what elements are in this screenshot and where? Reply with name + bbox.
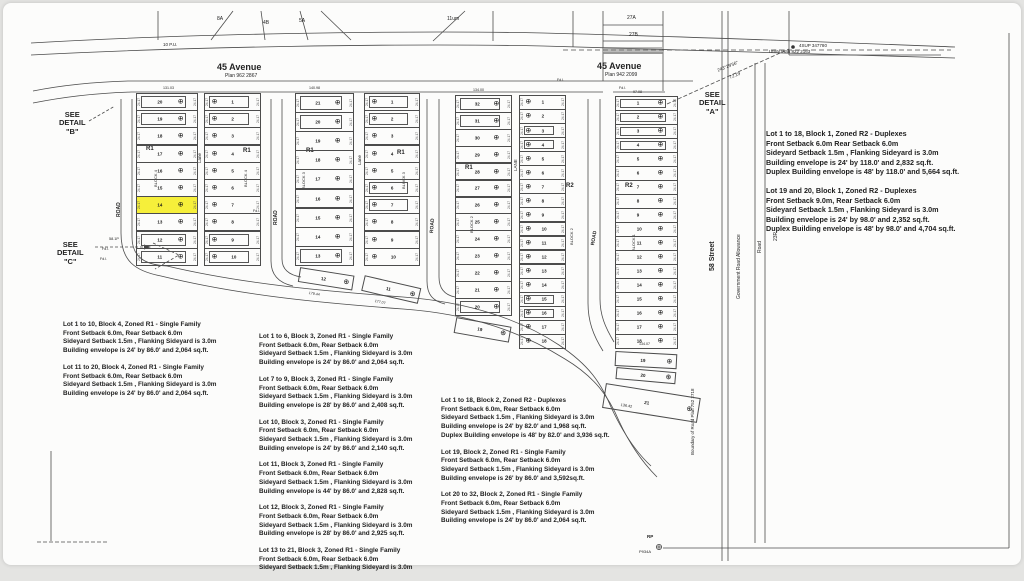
lot-block4-east-1[interactable]: 1⊕24.1724.17 xyxy=(204,93,261,111)
lot-block1-6[interactable]: 6⊕24.1724.17 xyxy=(615,166,678,181)
lot-block4-west-13[interactable]: 13⊕24.1724.17 xyxy=(136,213,198,231)
utility-marker-icon: ⊕ xyxy=(657,114,663,121)
lot-dimension: 24.17 xyxy=(456,184,460,192)
lot-dimension: 24.17 xyxy=(673,239,677,247)
lot-block2-east-9[interactable]: 9⊕24.1724.17 xyxy=(519,207,566,222)
lot-dimension: 24.17 xyxy=(616,141,620,149)
lot-number: 3 xyxy=(637,129,640,134)
utility-marker-icon: ⊕ xyxy=(525,268,531,275)
utility-marker-icon: ⊕ xyxy=(371,116,377,123)
lot-dimension: 24.17 xyxy=(520,141,524,149)
lot-block4-west-18[interactable]: 18⊕24.1724.17 xyxy=(136,127,198,145)
utility-marker-icon: ⊕ xyxy=(178,236,184,243)
lot-number: 20 xyxy=(157,100,162,105)
lot-number: 30 xyxy=(475,135,480,140)
lot-number: 3 xyxy=(542,128,545,133)
lot-number: 27 xyxy=(475,186,480,191)
lot-dimension: 24.17 xyxy=(520,323,524,331)
zoning-note-line: Sideyard Setback 1.5m , Flanking Sideyar… xyxy=(259,479,412,488)
zoning-note-line: Front Setback 6.0m, Rear Setback 6.0m xyxy=(441,500,610,509)
lot-block3-west-13[interactable]: 13⊕24.1724.17 xyxy=(295,246,354,266)
utility-marker-icon: ⊕ xyxy=(493,185,499,192)
zoning-note-line: Sideyard Setback 1.5m , Flanking Sideyar… xyxy=(259,350,412,359)
lot-block4-west-20[interactable]: 20⊕24.1724.17 xyxy=(136,93,198,111)
utility-marker-icon: ⊕ xyxy=(657,184,663,191)
lot-block1-13[interactable]: 13⊕24.1724.17 xyxy=(615,264,678,279)
lot-number: 23 xyxy=(475,254,480,259)
utility-marker-icon: ⊕ xyxy=(178,253,184,260)
lot-block4-east-5[interactable]: 5⊕24.1724.17 xyxy=(204,162,261,180)
lot-number: 10 xyxy=(391,254,396,259)
subdivision-plan-map: 45 AvenuePlan 962 286745 AvenuePlan 942 … xyxy=(3,3,1021,565)
see-detail-a-label: SEE DETAIL "A" xyxy=(699,91,726,116)
utility-marker-icon: ⊕ xyxy=(212,253,218,260)
lot-dimension: 24.17 xyxy=(296,137,300,145)
lot-block2-east-4[interactable]: 4⊕24.1724.17 xyxy=(519,137,566,152)
lot-number: 16 xyxy=(157,168,162,173)
lot-block1-5[interactable]: 5⊕24.1724.17 xyxy=(615,152,678,167)
lot-number: 9 xyxy=(231,237,234,242)
lot-dimension: 24.17 xyxy=(673,113,677,121)
utility-marker-icon: ⊕ xyxy=(525,197,531,204)
lot-block2-west-27[interactable]: 27⊕24.1724.17 xyxy=(455,180,512,198)
utility-marker-icon: ⊕ xyxy=(212,133,218,140)
lot-number: 26 xyxy=(475,203,480,208)
lot-dimension: 24.17 xyxy=(616,169,620,177)
lot-number: 6 xyxy=(391,186,394,191)
zoning-note-line: Building envelope is 24' by 82.0' and 1,… xyxy=(441,423,610,432)
lot-dimension: 24.17 xyxy=(507,303,511,311)
lot-dimension: 24.17 xyxy=(365,150,369,158)
lot-block3-east-1[interactable]: 1⊕24.1724.17 xyxy=(364,93,420,111)
lot-dimension: 24.17 xyxy=(673,155,677,163)
utility-marker-icon: ⊕ xyxy=(371,236,377,243)
lot-dimension: 24.17 xyxy=(296,233,300,241)
lot-block2-west-24[interactable]: 24⊕24.1724.17 xyxy=(455,230,512,248)
lot-block1-2[interactable]: 2⊕24.1724.17 xyxy=(615,110,678,125)
lot-block1-7[interactable]: 7⊕24.1724.17 xyxy=(615,180,678,195)
lot-block2-west-30[interactable]: 30⊕24.1724.17 xyxy=(455,129,512,147)
lot-block3-west-19[interactable]: 19⊕24.1724.17 xyxy=(295,131,354,151)
lot-dimension: 24.17 xyxy=(205,218,209,226)
zoning-note-line: Building envelope is 24' by 86.0' and 2,… xyxy=(63,347,216,356)
lot-dimension: 24.17 xyxy=(137,115,141,123)
lot-number: 1 xyxy=(542,100,545,105)
zoning-note-line: Sideyard Setback 1.5m , Flanking Sideyar… xyxy=(259,564,412,573)
map-label: 8A xyxy=(217,17,223,23)
zoning-note-line: Lot 1 to 10, Block 4, Zoned R1 - Single … xyxy=(63,321,216,330)
lot-dimension: 24.17 xyxy=(561,183,565,191)
lot-number: 9 xyxy=(542,212,545,217)
zoning-note-line: Sideyard Setback 1.5m , Flanking Sideyar… xyxy=(259,393,412,402)
lot-dimension: 24.17 xyxy=(507,218,511,226)
utility-marker-icon: ⊕ xyxy=(665,374,671,381)
utility-marker-icon: ⊕ xyxy=(493,270,499,277)
lot-dimension: 24.17 xyxy=(507,151,511,159)
lot-dimension: 24.17 xyxy=(616,253,620,261)
lot-number: 8 xyxy=(231,220,234,225)
lot-block2-east-18[interactable]: 18⊕24.1724.17 xyxy=(519,334,566,349)
map-label: Lane xyxy=(198,153,203,163)
lot-block2-east-6[interactable]: 6⊕24.1724.17 xyxy=(519,165,566,180)
lot-dimension: 24.17 xyxy=(673,267,677,275)
zoning-note-line: Lot 12, Block 3, Zoned R1 - Single Famil… xyxy=(259,504,412,513)
utility-marker-icon: ⊕ xyxy=(493,287,499,294)
lot-block2-west-28[interactable]: 28⊕24.1724.17 xyxy=(455,163,512,181)
map-label: 5A xyxy=(299,19,305,25)
utility-marker-icon: ⊕ xyxy=(493,253,499,260)
lot-number: 16 xyxy=(315,196,320,201)
lot-block1-4[interactable]: 4⊕24.1724.17 xyxy=(615,138,678,153)
lot-dimension: 24.17 xyxy=(415,150,419,158)
lot-number: 8 xyxy=(542,198,545,203)
rp-marker-label: RP xyxy=(647,535,653,540)
lot-block1-16[interactable]: 16⊕24.1724.17 xyxy=(615,306,678,321)
utility-marker-icon: ⊕ xyxy=(178,116,184,123)
lot-block1-1[interactable]: 1⊕24.1724.17 xyxy=(615,96,678,111)
lot-dimension: 24.17 xyxy=(415,218,419,226)
map-label: Fd.I. xyxy=(619,87,626,91)
lot-block2-west-23[interactable]: 23⊕24.1724.17 xyxy=(455,247,512,265)
utility-marker-icon: ⊕ xyxy=(525,296,531,303)
zone-r2-label: R2 xyxy=(566,183,574,190)
lot-number: 16 xyxy=(637,311,642,316)
lot-block2-east-14[interactable]: 14⊕24.1724.17 xyxy=(519,278,566,293)
lot-block3-east-7[interactable]: 7⊕24.1724.17 xyxy=(364,196,420,214)
utility-marker-icon: ⊕ xyxy=(686,405,693,413)
lot-dimension: 24.17 xyxy=(520,127,524,135)
utility-marker-icon: ⊕ xyxy=(371,202,377,209)
lot-dimension: 24.17 xyxy=(296,99,300,107)
lot-block4-east-3[interactable]: 3⊕24.1724.17 xyxy=(204,127,261,145)
lot-block2-west-20[interactable]: 20⊕24.1724.17 xyxy=(455,298,512,316)
lot-number: 1 xyxy=(231,100,234,105)
lot-dimension: 24.17 xyxy=(616,183,620,191)
lot-dimension: 24.17 xyxy=(205,98,209,106)
lot-block1-12[interactable]: 12⊕24.1724.17 xyxy=(615,250,678,265)
lot-block3-west-18[interactable]: 18⊕24.1724.17 xyxy=(295,150,354,170)
lot-dimension: 24.17 xyxy=(205,236,209,244)
lot-dimension: 24.17 xyxy=(456,286,460,294)
lot-block3-east-3[interactable]: 3⊕24.1724.17 xyxy=(364,127,420,145)
zoning-note-line: Sideyard Setback 1.5m , Flanking Sideyar… xyxy=(259,522,412,531)
lot-number: 11 xyxy=(542,240,547,245)
lot-number: 16 xyxy=(542,311,547,316)
utility-marker-icon: ⊕ xyxy=(657,268,663,275)
lot-block4-east-2[interactable]: 2⊕24.1724.17 xyxy=(204,110,261,128)
lot-block4-west-15[interactable]: 15⊕24.1724.17 xyxy=(136,179,198,197)
zoning-note-line: Building envelope is 24' by 98.0' and 2,… xyxy=(766,215,959,225)
lot-dimension: 24.17 xyxy=(137,201,141,209)
lot-block4-east-9[interactable]: 9⊕24.1724.17 xyxy=(204,231,261,249)
utility-marker-icon: ⊕ xyxy=(657,128,663,135)
lot-block4-west-16[interactable]: 16⊕24.1724.17 xyxy=(136,162,198,180)
lot-block2-west-32[interactable]: 32⊕24.1724.17 xyxy=(455,95,512,113)
lot-block3-west-17[interactable]: 17⊕24.1724.17 xyxy=(295,169,354,189)
lot-block2-east-13[interactable]: 13⊕24.1724.17 xyxy=(519,264,566,279)
lot-block2-east-11[interactable]: 11⊕24.1724.17 xyxy=(519,236,566,251)
utility-marker-icon: ⊕ xyxy=(371,150,377,157)
45-avenue-road xyxy=(33,81,693,91)
lot-number: 13 xyxy=(542,269,547,274)
see-detail-c-label: SEE DETAIL "C" xyxy=(57,241,84,266)
utility-marker-icon: ⊕ xyxy=(335,233,341,240)
map-label: 140.98 xyxy=(309,87,320,91)
lot-dimension: 24.17 xyxy=(415,201,419,209)
utility-marker-icon: ⊕ xyxy=(371,133,377,140)
lot-number: 4 xyxy=(231,151,234,156)
lot-dimension: 24.17 xyxy=(205,184,209,192)
lot-number: 13 xyxy=(315,253,320,258)
lot-block3-east-5[interactable]: 5⊕24.1724.17 xyxy=(364,162,420,180)
lot-block2-east-16[interactable]: 16⊕24.1724.17 xyxy=(519,306,566,321)
lot-dimension: 24.17 xyxy=(561,141,565,149)
utility-marker-icon: ⊕ xyxy=(178,185,184,192)
utility-marker-icon: ⊕ xyxy=(525,99,531,106)
utility-marker-icon: ⊕ xyxy=(525,324,531,331)
lot-number: 9 xyxy=(391,237,394,242)
lot-dimension: 24.17 xyxy=(673,281,677,289)
zoning-note: Lot 19 and 20, Block 1, Zoned R2 - Duple… xyxy=(766,186,959,234)
lot-block1-19[interactable]: 19⊕ xyxy=(615,351,678,369)
lot-block2-west-29[interactable]: 29⊕24.1724.17 xyxy=(455,146,512,164)
lot-dimension: 24.17 xyxy=(205,132,209,140)
lot-number: 13 xyxy=(637,269,642,274)
lot-number: 8 xyxy=(637,199,640,204)
lot-block2-east-8[interactable]: 8⊕24.1724.17 xyxy=(519,193,566,208)
utility-marker-icon: ⊕ xyxy=(371,219,377,226)
lot-block4-west-19[interactable]: 19⊕24.1724.17 xyxy=(136,110,198,128)
utility-marker-icon: ⊕ xyxy=(335,176,341,183)
lot-block2-west-22[interactable]: 22⊕24.1724.17 xyxy=(455,264,512,282)
lot-dimension: 24.17 xyxy=(673,99,677,107)
lot-block3-west-21[interactable]: 21⊕24.1724.17 xyxy=(295,93,354,113)
lot-block3-east-4[interactable]: 4⊕24.1724.17 xyxy=(364,145,420,163)
lot-block3-west-16[interactable]: 16⊕24.1724.17 xyxy=(295,189,354,209)
lot-number: 29 xyxy=(475,152,480,157)
lot-dimension: 24.17 xyxy=(137,167,141,175)
utility-marker-icon: ⊕ xyxy=(657,310,663,317)
zoning-note-line: Building envelope is 24' by 86.0' and 2,… xyxy=(259,445,412,454)
utility-marker-icon: ⊕ xyxy=(212,167,218,174)
zoning-note: Lot 1 to 18, Block 2, Zoned R2 - Duplexe… xyxy=(441,397,610,441)
lot-dimension: 24.17 xyxy=(205,167,209,175)
lot-block1-3[interactable]: 3⊕24.1724.17 xyxy=(615,124,678,139)
lot-dimension: 24.17 xyxy=(616,197,620,205)
lot-number: 14 xyxy=(542,283,547,288)
zoning-note-line: Sideyard Setback 1.5m , Flanking Sideyar… xyxy=(441,466,610,475)
lot-dimension: 24.17 xyxy=(296,195,300,203)
utility-marker-icon: ⊕ xyxy=(657,240,663,247)
lot-number: 1 xyxy=(391,100,394,105)
lot-dimension: 24.17 xyxy=(137,218,141,226)
lot-dimension: 24.17 xyxy=(507,100,511,108)
utility-marker-icon: ⊕ xyxy=(335,157,341,164)
lot-dimension: 24.17 xyxy=(365,98,369,106)
lot-block3-east-2[interactable]: 2⊕24.1724.17 xyxy=(364,110,420,128)
see-detail-b-label: SEE DETAIL "B" xyxy=(59,111,86,136)
lot-block4-east-8[interactable]: 8⊕24.1724.17 xyxy=(204,213,261,231)
lot-dimension: 24.17 xyxy=(673,337,677,345)
lot-block2-west-25[interactable]: 25⊕24.1724.17 xyxy=(455,213,512,231)
zoning-note-line: Sideyard Setback 1.5m , Flanking Sideyar… xyxy=(259,436,412,445)
lot-block1-17[interactable]: 17⊕24.1724.17 xyxy=(615,320,678,335)
lot-dimension: 24.17 xyxy=(507,201,511,209)
utility-marker-icon: ⊕ xyxy=(335,195,341,202)
lot-number: 15 xyxy=(637,297,642,302)
utility-marker-icon: ⊕ xyxy=(212,150,218,157)
lot-number: 10 xyxy=(542,226,547,231)
zoning-notes-col2: Lot 1 to 6, Block 3, Zoned R1 - Single F… xyxy=(259,333,412,581)
utility-marker-icon: ⊕ xyxy=(525,183,531,190)
lot-dimension: 24.17 xyxy=(205,150,209,158)
lot-block1-15[interactable]: 15⊕24.1724.17 xyxy=(615,292,678,307)
lot-number: 24 xyxy=(475,237,480,242)
lot-dimension: 24.17 xyxy=(456,134,460,142)
utility-marker-icon: ⊕ xyxy=(212,99,218,106)
map-label: 134.00 xyxy=(473,89,484,93)
lot-number: 21 xyxy=(315,100,320,105)
zoning-note-line: Lot 20 to 32, Block 2, Zoned R1 - Single… xyxy=(441,491,610,500)
zoning-note-line: Building envelope is 24' by 86.0' and 2,… xyxy=(63,390,216,399)
lot-block4-east-6[interactable]: 6⊕24.1724.17 xyxy=(204,179,261,197)
lot-dimension: 24.17 xyxy=(296,252,300,260)
lot-block2-east-5[interactable]: 5⊕24.1724.17 xyxy=(519,151,566,166)
zoning-note: Lot 11 to 20, Block 4, Zoned R1 - Single… xyxy=(63,364,216,399)
lot-number: 2 xyxy=(637,115,640,120)
lot-dimension: 24.17 xyxy=(561,253,565,261)
lot-block2-west-26[interactable]: 26⊕24.1724.17 xyxy=(455,197,512,215)
lot-dimension: 24.17 xyxy=(520,98,524,106)
zoning-note-line: Building envelope is 24' by 118.0' and 2… xyxy=(766,158,959,168)
lot-dimension: 24.17 xyxy=(673,211,677,219)
utility-marker-icon: ⊕ xyxy=(178,167,184,174)
zoning-note-line: Sideyard Setback 1.5m , Flanking Sideyar… xyxy=(63,381,216,390)
zoning-note: Lot 1 to 18, Block 1, Zoned R2 - Duplexe… xyxy=(766,129,959,177)
utility-marker-icon: ⊕ xyxy=(493,236,499,243)
lot-number: 6 xyxy=(542,170,545,175)
lot-block4-west-12[interactable]: 12⊕24.1724.17 xyxy=(136,231,198,249)
lot-dimension: 24.17 xyxy=(349,175,353,183)
lot-dimension: 24.17 xyxy=(137,184,141,192)
lot-dimension: 24.17 xyxy=(520,197,524,205)
zoning-note: Lot 1 to 10, Block 4, Zoned R1 - Single … xyxy=(63,321,216,356)
street-58-street: 58 Street xyxy=(709,241,717,271)
lot-block2-west-21[interactable]: 21⊕24.1724.17 xyxy=(455,281,512,299)
lot-number: 6 xyxy=(231,186,234,191)
zoning-note: Lot 1 to 6, Block 3, Zoned R1 - Single F… xyxy=(259,333,412,368)
lot-dimension: 24.17 xyxy=(365,115,369,123)
lot-number: 5 xyxy=(542,156,545,161)
lot-block3-east-10[interactable]: 10⊕24.1724.17 xyxy=(364,248,420,266)
lot-block1-9[interactable]: 9⊕24.1724.17 xyxy=(615,208,678,223)
lot-dimension: 24.17 xyxy=(616,281,620,289)
street-45-avenue-east: 45 Avenue xyxy=(597,62,641,72)
utility-marker-icon: ⊕ xyxy=(657,282,663,289)
lot-dimension: 24.17 xyxy=(205,201,209,209)
lot-number: 18 xyxy=(157,134,162,139)
lot-block2-east-3[interactable]: 3⊕24.1724.17 xyxy=(519,123,566,138)
lot-block2-west-31[interactable]: 31⊕24.1724.17 xyxy=(455,112,512,130)
lot-number: 20 xyxy=(475,304,480,309)
lot-dimension: 24.17 xyxy=(616,99,620,107)
highlighted-lot-block4-west-14[interactable]: 14⊕24.1724.17 xyxy=(136,196,198,214)
lot-dimension: 24.17 xyxy=(349,118,353,126)
lot-block4-east-10[interactable]: 10⊕24.1724.17 xyxy=(204,248,261,266)
lot-dimension: 24.17 xyxy=(456,201,460,209)
lot-number: 14 xyxy=(157,203,162,208)
lot-number: 18 xyxy=(315,158,320,163)
zoning-note-line: Sideyard Setback 1.5m , Flanking Sideyar… xyxy=(441,414,610,423)
lot-dimension: 24.17 xyxy=(415,236,419,244)
lot-block3-east-9[interactable]: 9⊕24.1724.17 xyxy=(364,231,420,249)
lot-number: 15 xyxy=(157,186,162,191)
lot-dimension: 24.17 xyxy=(520,112,524,120)
utility-marker-icon: ⊕ xyxy=(525,282,531,289)
lot-block2-east-1[interactable]: 1⊕24.1724.17 xyxy=(519,95,566,110)
zoning-note-line: Sideyard Setback 1.5m , Flanking Sideyar… xyxy=(63,338,216,347)
lot-dimension: 24.17 xyxy=(561,239,565,247)
lot-dimension: 24.17 xyxy=(520,253,524,261)
lot-block4-west-17[interactable]: 17⊕24.1724.17 xyxy=(136,145,198,163)
lot-dimension: 24.17 xyxy=(349,99,353,107)
zoning-note-line: Front Setback 6.0m, Rear Setback 6.0m xyxy=(259,513,412,522)
utility-marker-icon: ⊕ xyxy=(657,226,663,233)
lot-number: 18 xyxy=(542,339,547,344)
lot-block1-18[interactable]: 18⊕24.1724.17 xyxy=(615,334,678,349)
lot-number: 2 xyxy=(391,117,394,122)
lot-number: 18 xyxy=(637,339,642,344)
lot-block3-west-20[interactable]: 20⊕24.1724.17 xyxy=(295,112,354,132)
lot-block1-8[interactable]: 8⊕24.1724.17 xyxy=(615,194,678,209)
lot-block3-east-8[interactable]: 8⊕24.1724.17 xyxy=(364,213,420,231)
lot-block2-east-15[interactable]: 15⊕24.1724.17 xyxy=(519,292,566,307)
lot-number: 14 xyxy=(637,283,642,288)
lot-block3-west-14[interactable]: 14⊕24.1724.17 xyxy=(295,227,354,247)
lot-block2-east-10[interactable]: 10⊕24.1724.17 xyxy=(519,222,566,237)
lot-block2-east-2[interactable]: 2⊕24.1724.17 xyxy=(519,109,566,124)
lot-dimension: 24.17 xyxy=(561,155,565,163)
lot-block2-east-17[interactable]: 17⊕24.1724.17 xyxy=(519,320,566,335)
lot-block2-east-12[interactable]: 12⊕24.1724.17 xyxy=(519,250,566,265)
utility-marker-icon: ⊕ xyxy=(657,142,663,149)
lot-block4-east-4[interactable]: 4⊕24.1724.17 xyxy=(204,145,261,163)
lot-block1-11[interactable]: 11⊕24.1724.17 xyxy=(615,236,678,251)
lot-dimension: 24.17 xyxy=(193,167,197,175)
utility-marker-icon: ⊕ xyxy=(525,225,531,232)
zoning-note-line: Lot 19, Block 2, Zoned R1 - Single Famil… xyxy=(441,449,610,458)
lot-block4-east-7[interactable]: 7⊕24.1724.17 xyxy=(204,196,261,214)
lot-block1-14[interactable]: 14⊕24.1724.17 xyxy=(615,278,678,293)
detail-b-arrow xyxy=(89,106,115,121)
lot-block3-east-6[interactable]: 6⊕24.1724.17 xyxy=(364,179,420,197)
lot-block4-west-11[interactable]: 11⊕24.1724.17 xyxy=(136,248,198,266)
zoning-note-line: Front Setback 6.0m Rear Setback 6.0m xyxy=(766,139,959,149)
utility-marker-icon: ⊕ xyxy=(212,202,218,209)
lot-dimension: 24.17 xyxy=(561,169,565,177)
utility-marker-icon: ⊕ xyxy=(657,324,663,331)
lot-block2-east-7[interactable]: 7⊕24.1724.17 xyxy=(519,179,566,194)
lot-block3-west-15[interactable]: 15⊕24.1724.17 xyxy=(295,208,354,228)
lot-dimension: 24.17 xyxy=(415,167,419,175)
lot-dimension: 24.17 xyxy=(193,218,197,226)
map-label: 10 P.U. xyxy=(163,43,177,48)
utility-marker-icon: ⊕ xyxy=(371,99,377,106)
utility-marker-icon: ⊕ xyxy=(525,141,531,148)
zoning-note: Lot 11, Block 3, Zoned R1 - Single Famil… xyxy=(259,461,412,496)
lot-dimension: 24.17 xyxy=(616,113,620,121)
lot-block1-10[interactable]: 10⊕24.1724.17 xyxy=(615,222,678,237)
